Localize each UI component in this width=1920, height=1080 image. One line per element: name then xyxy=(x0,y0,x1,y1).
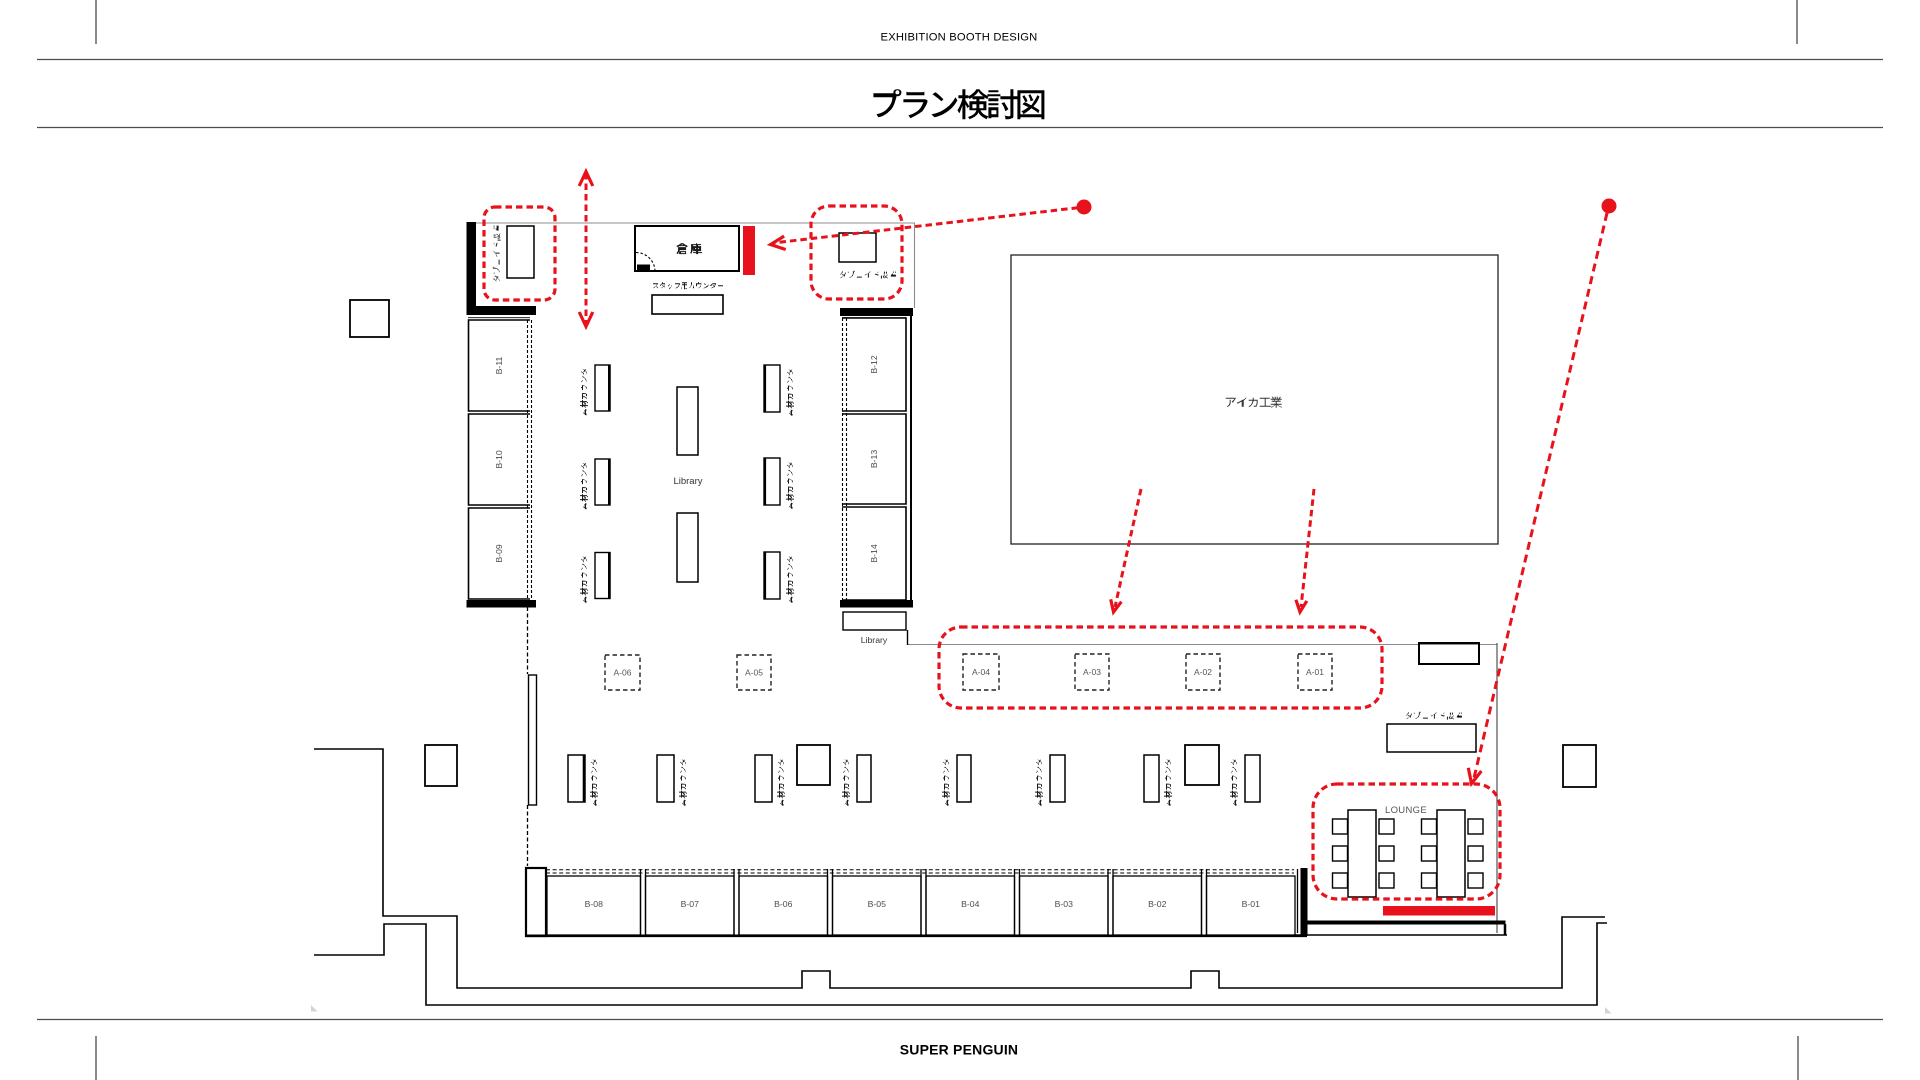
svg-text:B-07: B-07 xyxy=(681,899,700,909)
svg-text:EXHIBITION BOOTH DESIGN: EXHIBITION BOOTH DESIGN xyxy=(881,32,1038,44)
svg-text:A-02: A-02 xyxy=(1194,667,1212,677)
svg-text:B-04: B-04 xyxy=(961,899,980,909)
svg-text:B-01: B-01 xyxy=(1242,899,1261,909)
svg-text:B-10: B-10 xyxy=(494,450,504,469)
svg-text:B-09: B-09 xyxy=(494,544,504,563)
svg-text:A-03: A-03 xyxy=(1083,667,1101,677)
svg-text:A-06: A-06 xyxy=(614,668,632,678)
svg-text:B-03: B-03 xyxy=(1055,899,1074,909)
svg-text:Library: Library xyxy=(673,476,702,487)
svg-text:B-14: B-14 xyxy=(869,544,879,563)
svg-text:SUPER PENGUIN: SUPER PENGUIN xyxy=(900,1042,1019,1058)
svg-text:B-05: B-05 xyxy=(868,899,887,909)
svg-text:Library: Library xyxy=(861,635,888,645)
svg-text:B-11: B-11 xyxy=(494,356,504,374)
svg-text:B-13: B-13 xyxy=(869,450,879,469)
svg-text:B-08: B-08 xyxy=(585,899,604,909)
svg-text:A-01: A-01 xyxy=(1306,667,1324,677)
svg-text:A-04: A-04 xyxy=(972,667,990,677)
svg-text:B-06: B-06 xyxy=(774,899,793,909)
svg-text:B-12: B-12 xyxy=(869,355,879,374)
svg-text:B-02: B-02 xyxy=(1148,899,1167,909)
svg-text:A-05: A-05 xyxy=(745,668,763,678)
svg-text:LOUNGE: LOUNGE xyxy=(1385,805,1427,816)
